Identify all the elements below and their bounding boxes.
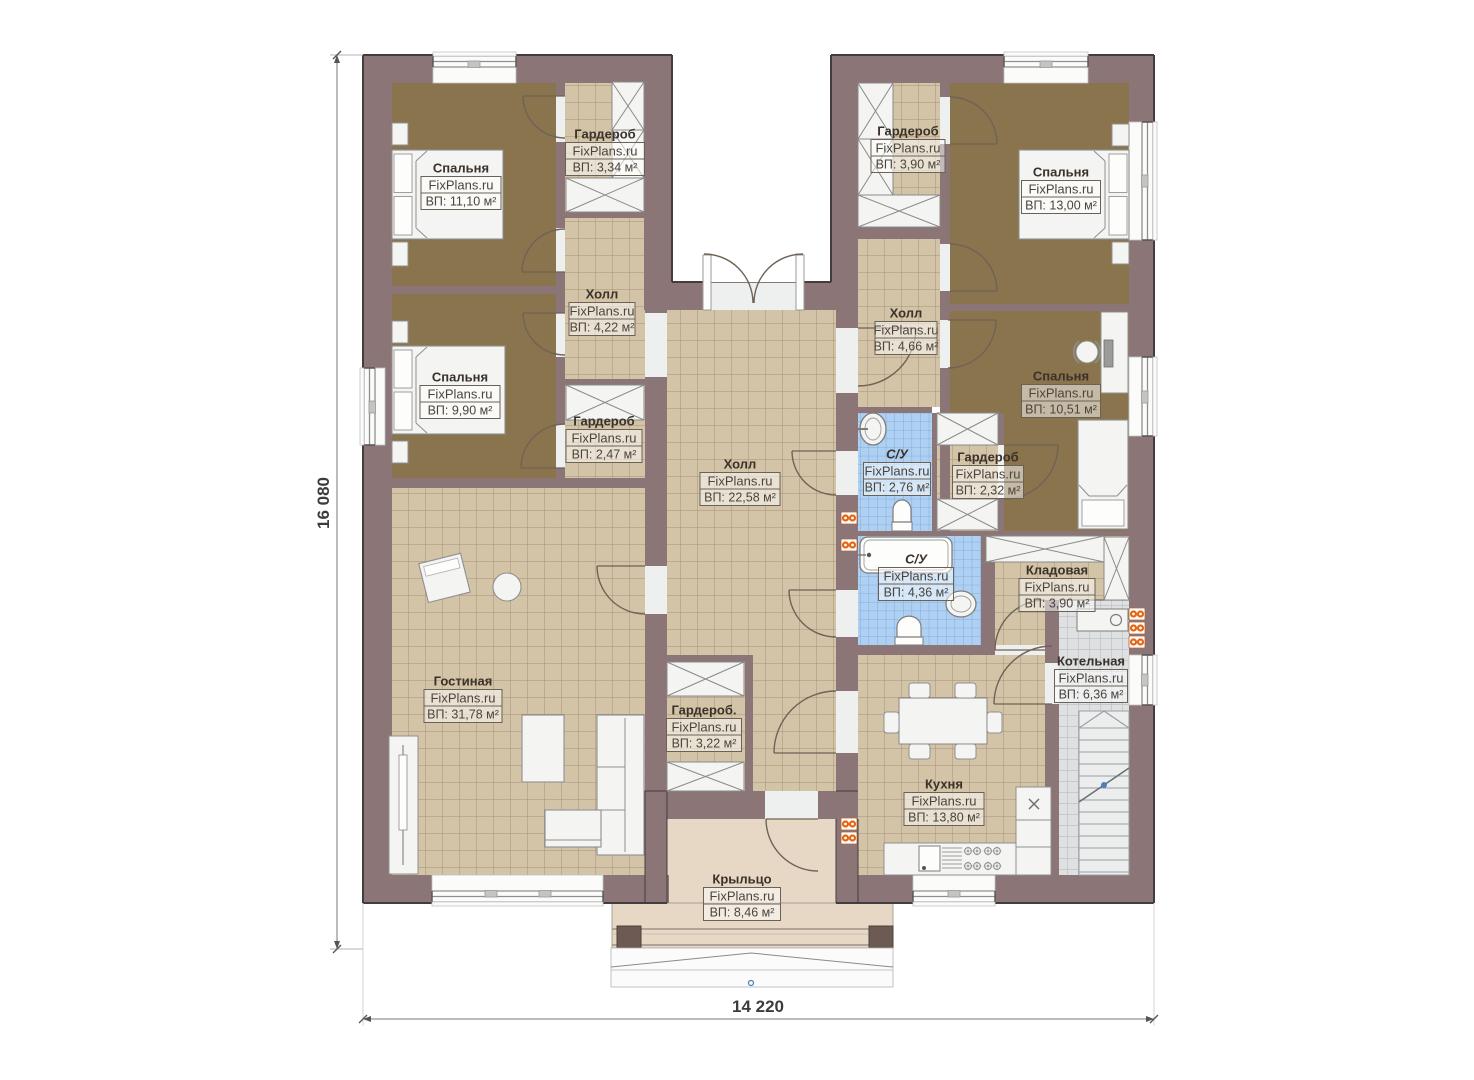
svg-text:Гардероб: Гардероб	[877, 124, 938, 139]
svg-text:ВП: 2,32 м²: ВП: 2,32 м²	[956, 484, 1021, 498]
svg-text:FixPlans.ru: FixPlans.ru	[430, 691, 495, 706]
svg-text:ВП: 13,80 м²: ВП: 13,80 м²	[908, 811, 980, 825]
svg-text:Котельная: Котельная	[1057, 654, 1125, 669]
svg-text:Кладовая: Кладовая	[1026, 563, 1088, 578]
svg-text:ВП: 31,78 м²: ВП: 31,78 м²	[427, 708, 499, 722]
svg-text:С/У: С/У	[886, 447, 909, 462]
svg-text:ВП: 3,90 м²: ВП: 3,90 м²	[876, 158, 941, 172]
svg-text:Гардероб: Гардероб	[574, 127, 635, 142]
svg-text:Холл: Холл	[586, 287, 619, 302]
svg-text:FixPlans.ru: FixPlans.ru	[671, 720, 736, 735]
svg-text:FixPlans.ru: FixPlans.ru	[1058, 671, 1123, 686]
svg-text:FixPlans.ru: FixPlans.ru	[911, 794, 976, 809]
svg-text:14 220: 14 220	[732, 997, 784, 1016]
svg-text:ВП: 3,34 м²: ВП: 3,34 м²	[573, 161, 638, 175]
svg-text:ВП: 6,36 м²: ВП: 6,36 м²	[1059, 688, 1124, 702]
svg-text:ВП: 10,51 м²: ВП: 10,51 м²	[1025, 403, 1097, 417]
svg-text:16 080: 16 080	[314, 477, 333, 529]
svg-text:ВП: 13,00 м²: ВП: 13,00 м²	[1025, 199, 1097, 213]
svg-text:ВП: 11,10 м²: ВП: 11,10 м²	[426, 195, 497, 209]
svg-text:ВП: 8,46 м²: ВП: 8,46 м²	[710, 906, 775, 920]
svg-text:FixPlans.ru: FixPlans.ru	[864, 464, 929, 479]
svg-text:ВП: 4,22 м²: ВП: 4,22 м²	[570, 321, 635, 335]
svg-text:FixPlans.ru: FixPlans.ru	[1028, 182, 1093, 197]
svg-text:Гардероб: Гардероб	[573, 414, 634, 429]
svg-text:FixPlans.ru: FixPlans.ru	[955, 467, 1020, 482]
svg-text:Гостиная: Гостиная	[434, 674, 493, 689]
svg-text:Холл: Холл	[724, 457, 757, 472]
svg-text:FixPlans.ru: FixPlans.ru	[709, 889, 774, 904]
svg-text:FixPlans.ru: FixPlans.ru	[873, 323, 938, 338]
svg-text:FixPlans.ru: FixPlans.ru	[571, 431, 636, 446]
svg-text:FixPlans.ru: FixPlans.ru	[572, 144, 637, 159]
svg-text:Гардероб.: Гардероб.	[671, 703, 736, 718]
svg-text:FixPlans.ru: FixPlans.ru	[428, 178, 493, 193]
svg-text:ВП: 2,76 м²: ВП: 2,76 м²	[865, 481, 930, 495]
svg-text:ВП: 3,22 м²: ВП: 3,22 м²	[672, 737, 737, 751]
svg-text:ВП: 9,90 м²: ВП: 9,90 м²	[428, 404, 493, 418]
svg-text:Гардероб: Гардероб	[957, 450, 1018, 465]
svg-text:Спальня: Спальня	[433, 161, 489, 176]
svg-text:ВП: 4,66 м²: ВП: 4,66 м²	[874, 340, 939, 354]
svg-text:FixPlans.ru: FixPlans.ru	[1028, 386, 1093, 401]
svg-text:FixPlans.ru: FixPlans.ru	[569, 304, 634, 319]
svg-text:С/У: С/У	[905, 552, 928, 567]
svg-text:ВП: 2,47 м²: ВП: 2,47 м²	[572, 448, 637, 462]
svg-text:Спальня: Спальня	[1033, 165, 1089, 180]
svg-text:FixPlans.ru: FixPlans.ru	[875, 141, 940, 156]
svg-text:FixPlans.ru: FixPlans.ru	[427, 387, 492, 402]
svg-text:ВП: 3,90 м²: ВП: 3,90 м²	[1025, 597, 1090, 611]
svg-text:Кухня: Кухня	[925, 777, 963, 792]
svg-text:FixPlans.ru: FixPlans.ru	[883, 569, 948, 584]
svg-text:Холл: Холл	[890, 306, 923, 321]
svg-text:FixPlans.ru: FixPlans.ru	[1024, 580, 1089, 595]
svg-text:Спальня: Спальня	[432, 370, 488, 385]
svg-text:Спальня: Спальня	[1033, 369, 1089, 384]
svg-text:FixPlans.ru: FixPlans.ru	[707, 474, 772, 489]
svg-text:Крыльцо: Крыльцо	[712, 872, 771, 887]
svg-text:ВП: 22,58 м²: ВП: 22,58 м²	[704, 491, 776, 505]
svg-text:ВП: 4,36 м²: ВП: 4,36 м²	[884, 586, 949, 600]
